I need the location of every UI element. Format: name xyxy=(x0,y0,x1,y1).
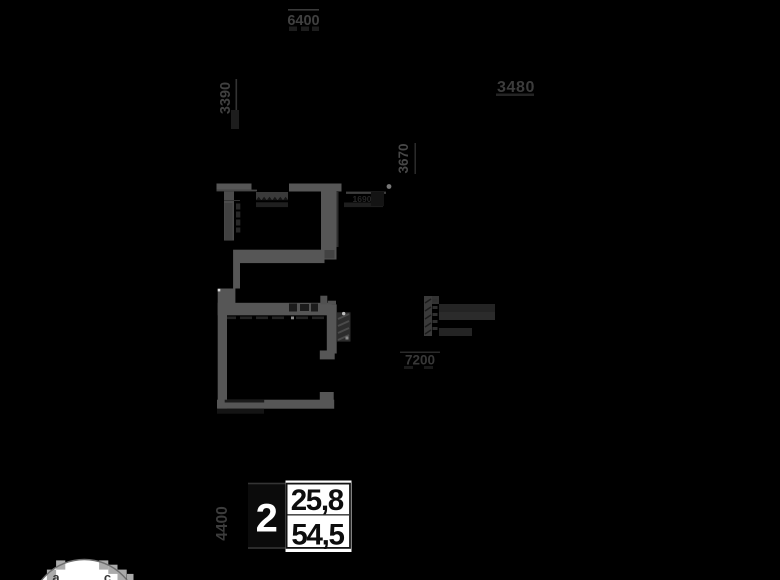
svg-text:25,8: 25,8 xyxy=(291,484,344,517)
svg-text:4400: 4400 xyxy=(214,506,231,540)
svg-text:54,5: 54,5 xyxy=(291,518,344,551)
svg-text:а: а xyxy=(52,570,60,580)
svg-text:7200: 7200 xyxy=(405,353,435,368)
svg-text:3670: 3670 xyxy=(396,143,411,173)
svg-text:3390: 3390 xyxy=(218,82,234,114)
svg-text:с: с xyxy=(104,570,111,580)
svg-text:2: 2 xyxy=(256,497,278,541)
svg-text:3480: 3480 xyxy=(497,79,535,96)
